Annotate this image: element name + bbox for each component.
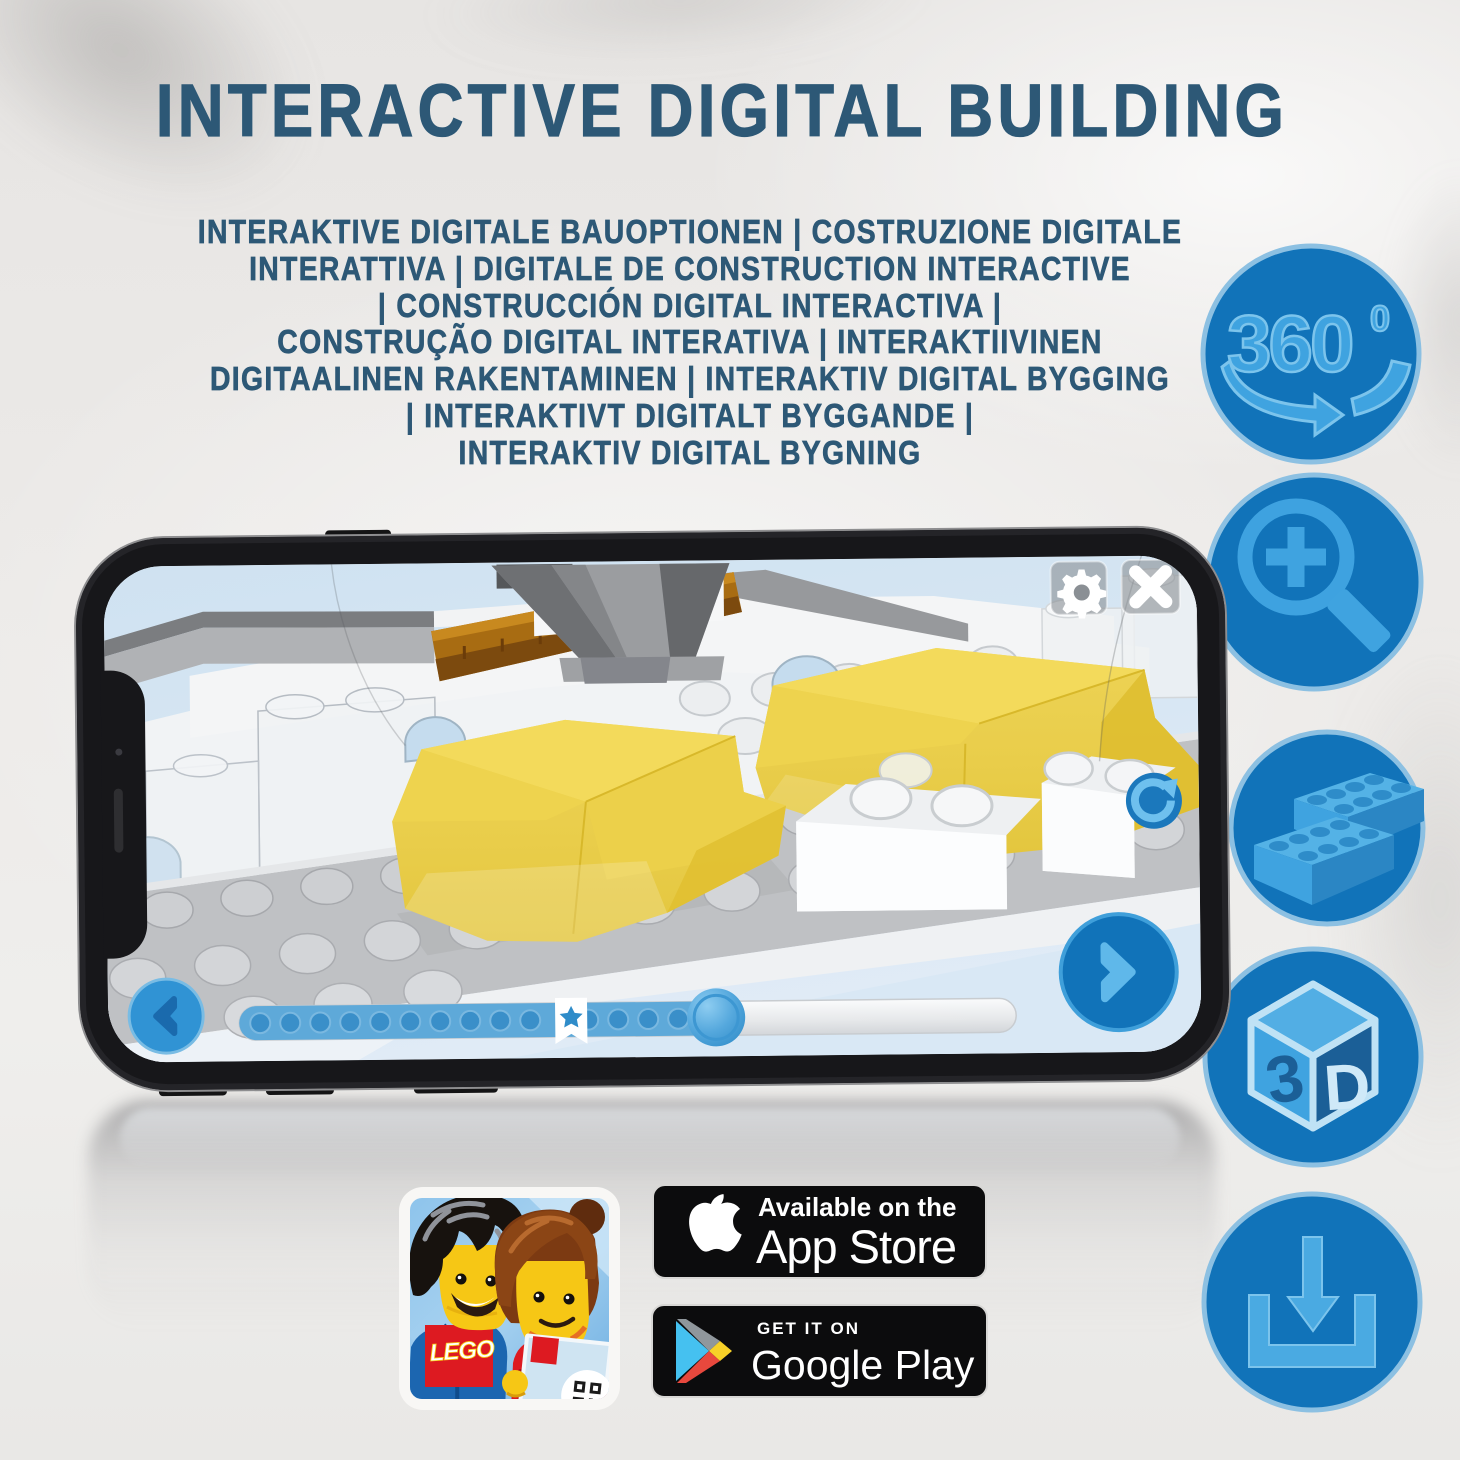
svg-text:LEGO: LEGO	[429, 1335, 496, 1366]
svg-text:360: 360	[1227, 299, 1352, 388]
svg-text:0: 0	[1370, 298, 1390, 339]
svg-text:App Store: App Store	[756, 1220, 956, 1273]
svg-text:GET IT ON: GET IT ON	[757, 1319, 860, 1338]
svg-text:Available on the: Available on the	[758, 1192, 956, 1222]
svg-text:Google Play: Google Play	[751, 1342, 975, 1388]
svg-text:D: D	[1322, 1049, 1373, 1124]
